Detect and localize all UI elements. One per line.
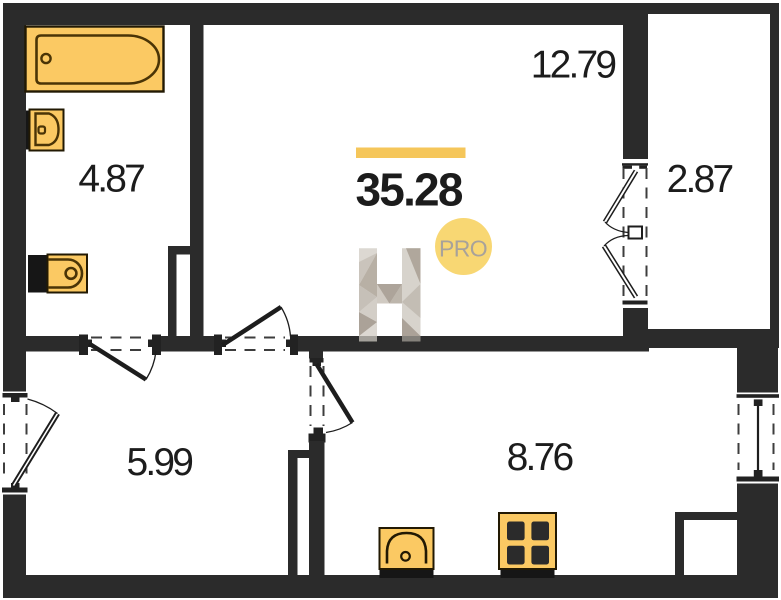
svg-text:35.28: 35.28 (356, 164, 463, 216)
svg-text:5.99: 5.99 (126, 441, 192, 484)
svg-text:PRO: PRO (439, 236, 487, 262)
svg-text:2.87: 2.87 (667, 158, 733, 201)
svg-text:8.76: 8.76 (507, 436, 573, 479)
svg-text:4.87: 4.87 (78, 158, 144, 201)
svg-text:12.79: 12.79 (531, 44, 616, 87)
